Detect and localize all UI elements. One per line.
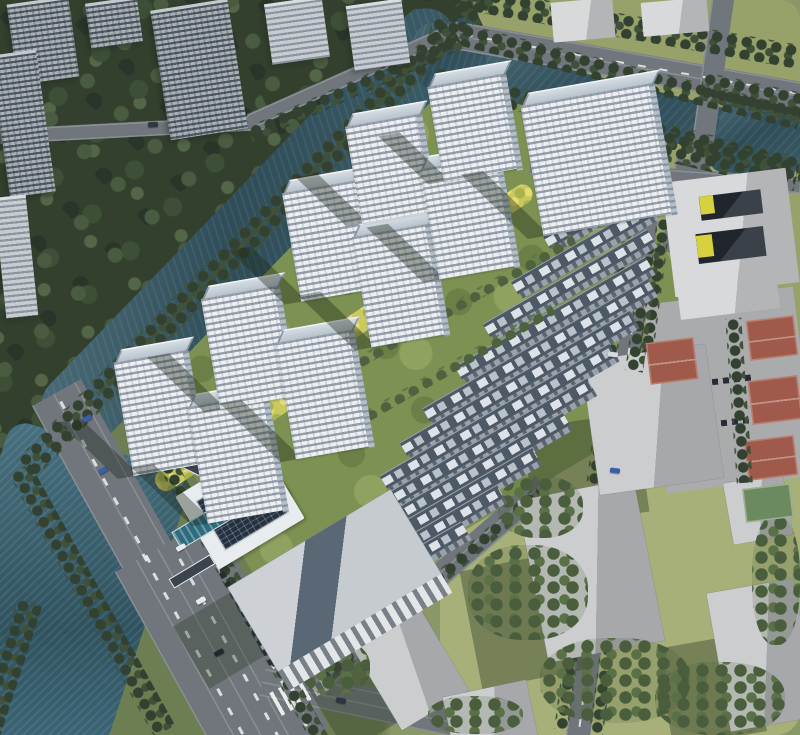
vehicle-8 (148, 122, 158, 128)
tree-cluster-5 (498, 476, 583, 538)
rendering-canvas: Aerial bird's-eye architectural renderin… (0, 0, 800, 735)
tree-cluster-3 (655, 662, 785, 735)
east-court-4 (742, 483, 794, 523)
campus-courtyard-2-accent (696, 234, 715, 258)
vehicle-5 (608, 351, 619, 357)
residential-tower-10 (518, 72, 671, 236)
tower-facade (521, 84, 672, 237)
basketball-court (646, 337, 699, 385)
east-court-2 (748, 375, 800, 425)
tree-cluster-1 (468, 545, 588, 640)
east-court-1 (746, 315, 799, 361)
context-tower-6 (346, 0, 411, 71)
tree-cluster-4 (752, 515, 800, 645)
tree-cluster-6 (428, 696, 523, 734)
campus-courtyard-1-accent (699, 195, 715, 215)
vehicle-9 (610, 467, 621, 473)
context-tower-2 (85, 0, 143, 48)
north-context-block-2 (641, 0, 710, 37)
north-context-block-1 (550, 0, 615, 43)
context-tower-5 (264, 0, 330, 65)
